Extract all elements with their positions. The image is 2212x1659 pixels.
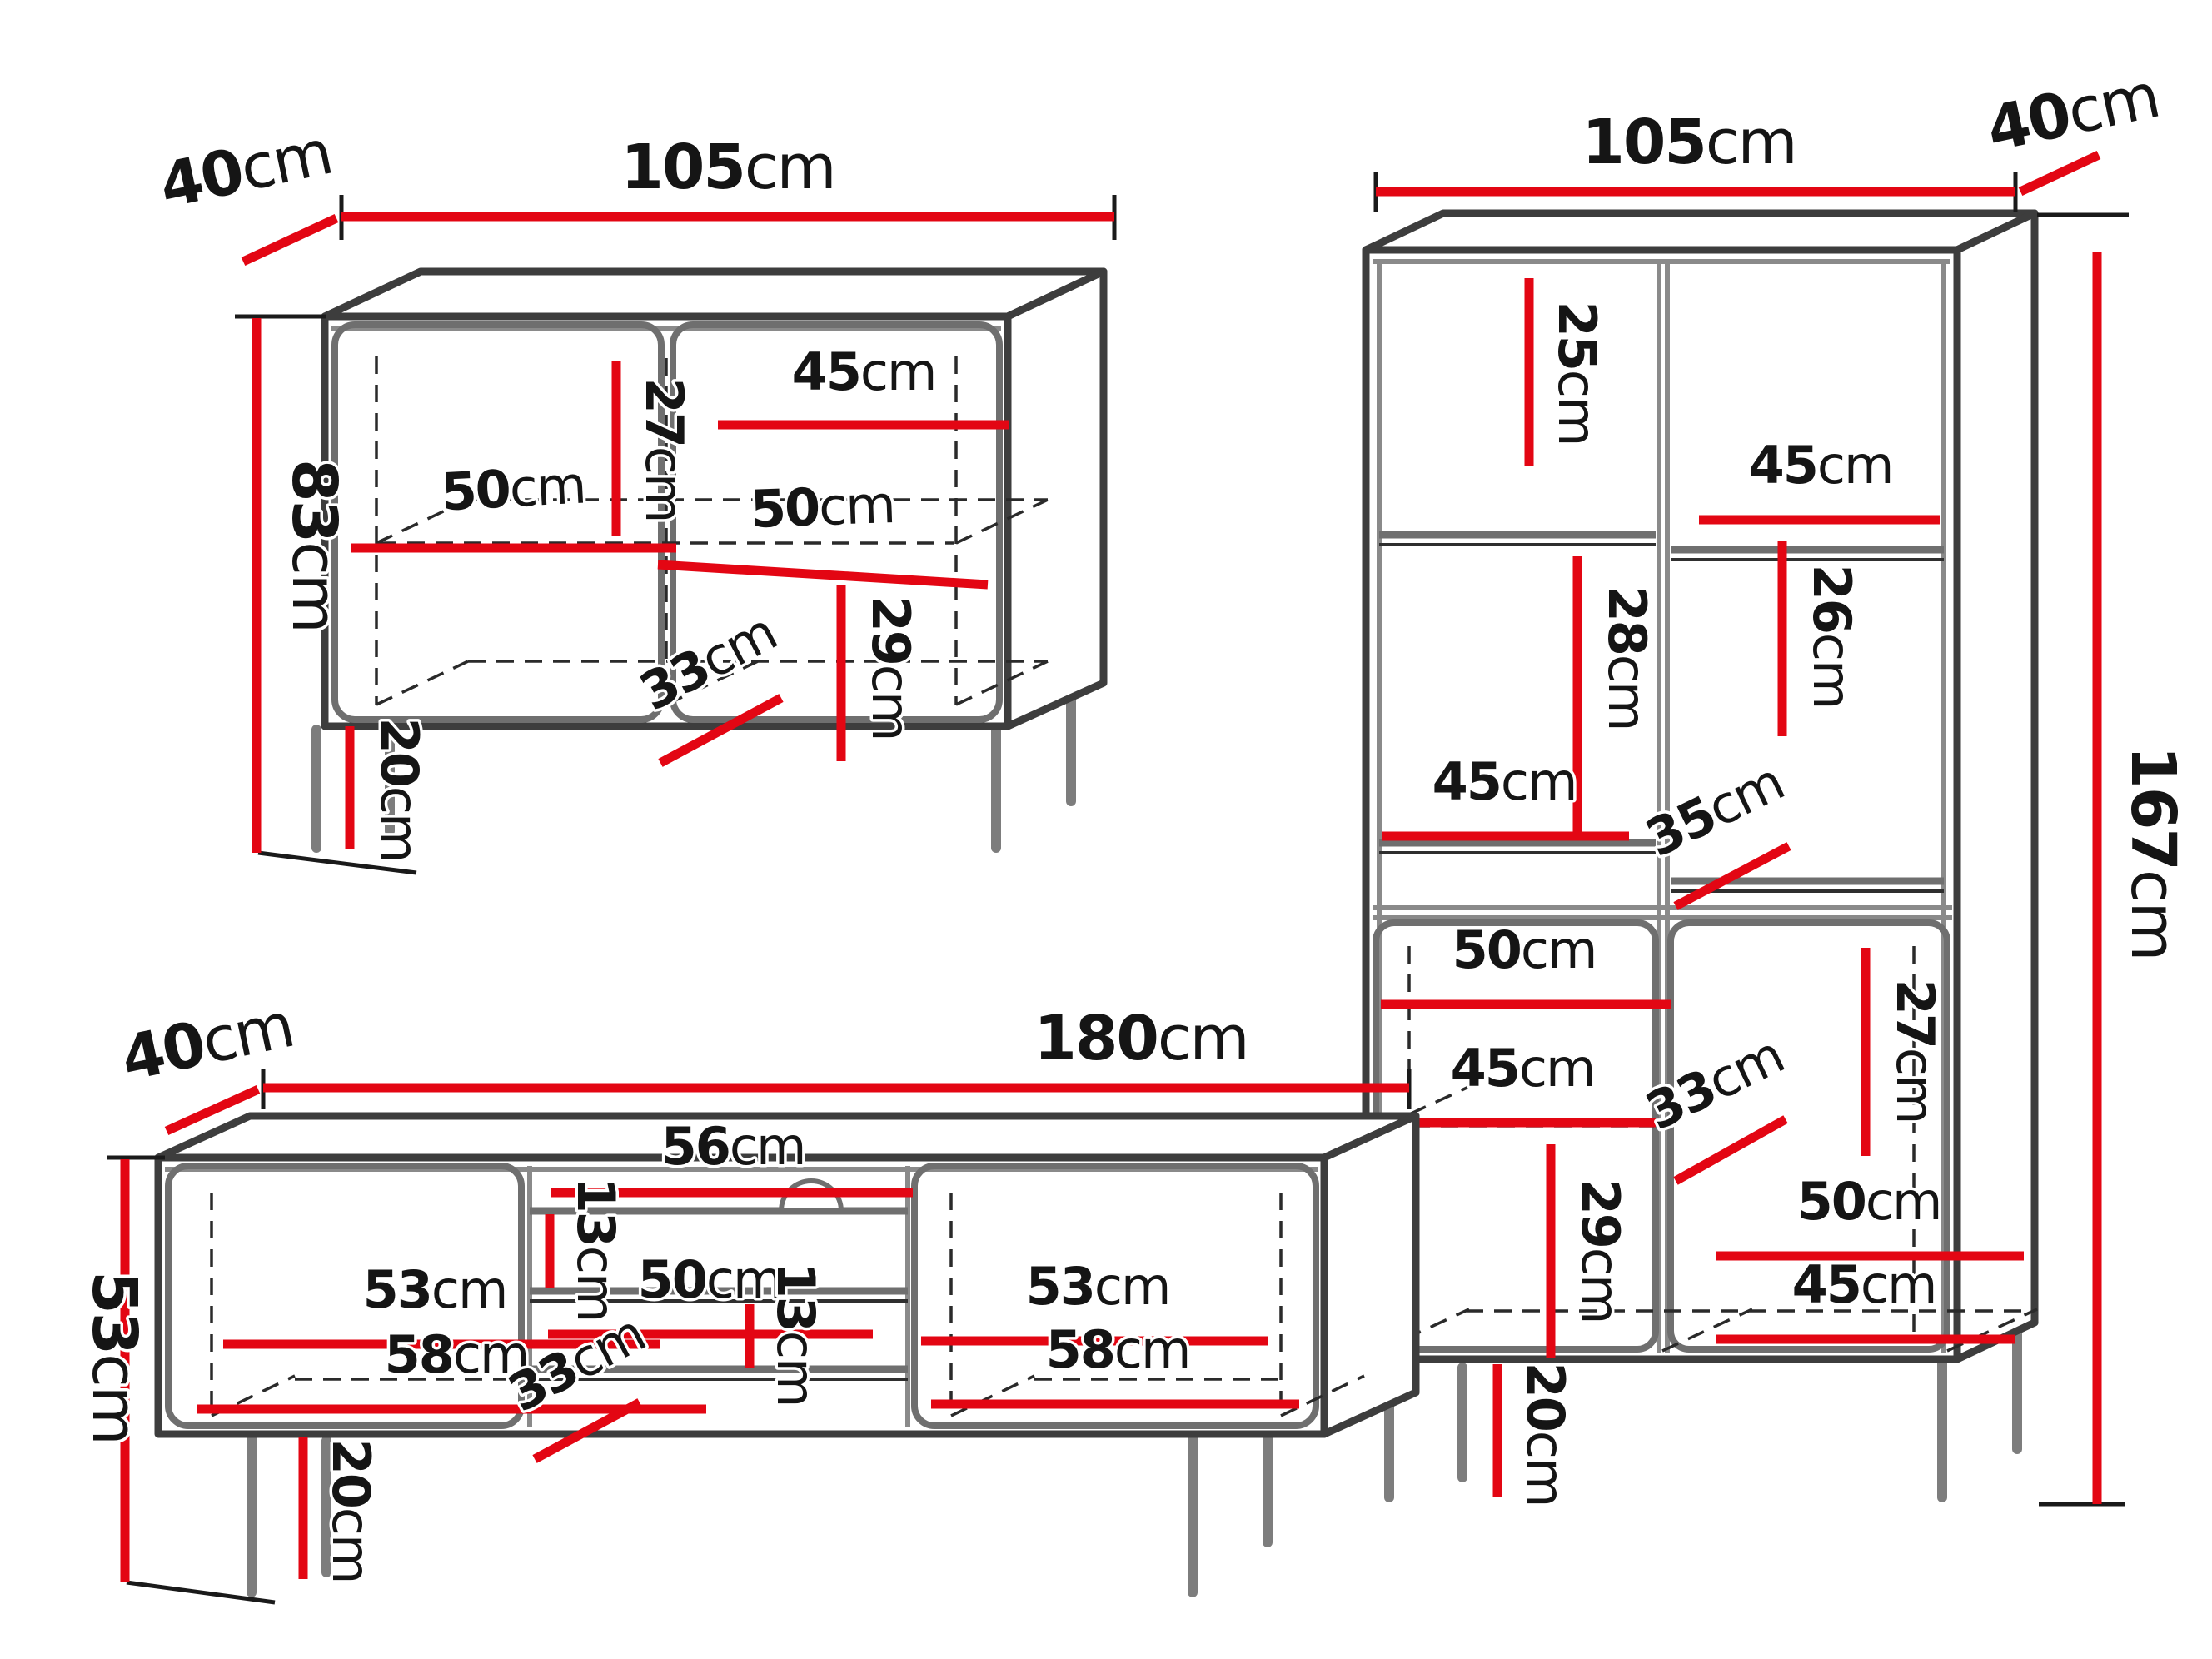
tv-stand-leg-label: 20cm [321,1439,381,1583]
sideboard-drawing: 40cm 105cm 83cm 27cm 45cm 50cm 50cm 29cm… [153,117,1114,873]
cabinet-27-label: 27cm [1885,979,1945,1123]
display-cabinet-drawing: 105cm 40cm 167cm 25cm 45cm 26cm 45cm 28c… [1366,60,2189,1506]
cabinet-25-label: 25cm [1547,301,1607,446]
cabinet-height-label: 167cm [2117,745,2189,959]
tv-stand-56-label: 56cm [661,1116,805,1177]
sideboard-height-label: 83cm [278,459,350,632]
tv-stand-13-upper-label: 13cm [565,1178,626,1322]
tv-stand-58-right-label: 58cm [1046,1319,1190,1380]
tv-stand-50-label: 50cm [638,1249,782,1310]
sideboard-leg-label: 20cm [369,718,430,862]
sideboard-29-label: 29cm [860,596,921,740]
tv-stand-drawing: 40cm 180cm 53cm 53cm 58cm 13cm 56cm 50cm… [78,989,1416,1602]
cabinet-45-mid-left-label: 45cm [1432,751,1577,812]
cabinet-45-bottom-right-label: 45cm [1792,1254,1936,1315]
cabinet-45-upper-right-label: 45cm [1749,435,1893,496]
cabinet-depth-label: 40cm [1980,60,2165,166]
sideboard-50-right-label: 50cm [750,474,895,540]
cabinet-width-label: 105cm [1582,107,1796,178]
sideboard-50-left-label: 50cm [440,455,586,523]
furniture-dimension-diagram: 40cm 105cm 83cm 27cm 45cm 50cm 50cm 29cm… [0,0,2212,1659]
cabinet-leg-label: 20cm [1515,1363,1576,1507]
cabinet-50-lower-left-label: 50cm [1452,919,1597,980]
sideboard-depth-label: 40cm [153,117,337,222]
tv-stand-13-lower-label: 13cm [765,1263,826,1407]
sideboard-width-label: 105cm [620,132,834,203]
cabinet-depth-line [2020,155,2099,192]
diagram-canvas: 40cm 105cm 83cm 27cm 45cm 50cm 50cm 29cm… [0,0,2212,1659]
cabinet-45-lower-left-label: 45cm [1451,1038,1595,1099]
sideboard-27-label: 27cm [634,378,695,522]
sideboard-depth-line [243,218,336,262]
tv-stand-height-label: 53cm [78,1271,150,1444]
cabinet-26-label: 26cm [1801,565,1862,709]
cabinet-50-bottom-right-label: 50cm [1797,1171,1941,1232]
tv-stand-53-right-label: 53cm [1026,1256,1170,1317]
tv-stand-side-face [1324,1116,1416,1434]
sideboard-45-label: 45cm [792,341,936,402]
cabinet-top-face [1366,213,2035,250]
tv-stand-53-left-label: 53cm [363,1259,507,1320]
sideboard-top-face [325,272,1104,316]
cabinet-side-face [1957,213,2035,1359]
tv-stand-width-label: 180cm [1034,1003,1248,1074]
tv-stand-depth-label: 40cm [115,989,299,1095]
cabinet-28-label: 28cm [1597,586,1657,730]
cabinet-29-label: 29cm [1570,1179,1631,1323]
